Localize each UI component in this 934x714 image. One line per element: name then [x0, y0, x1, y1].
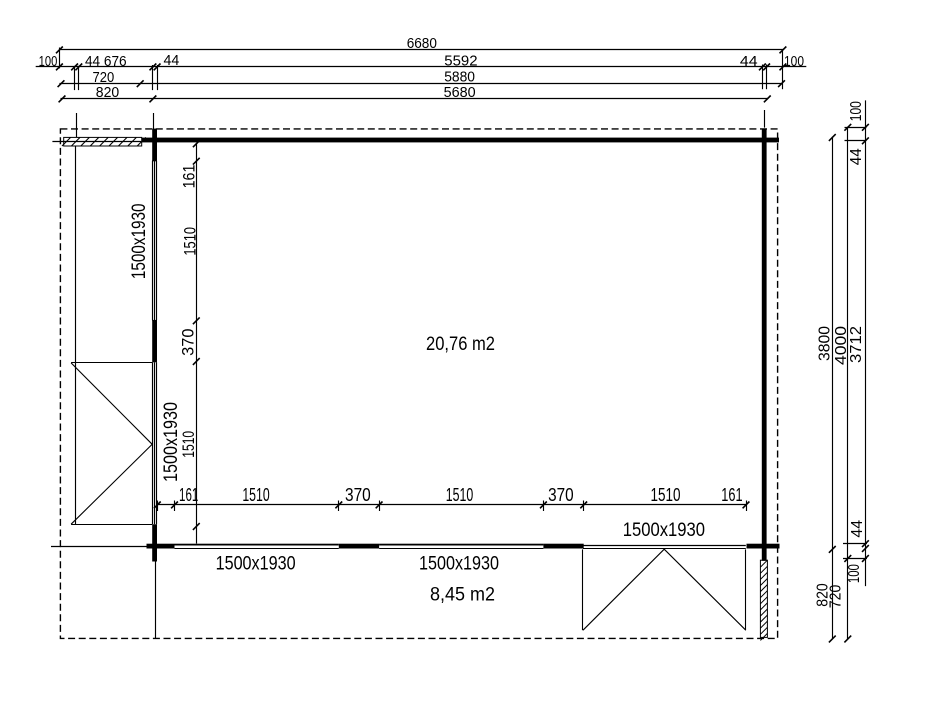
svg-text:161: 161: [179, 485, 198, 505]
svg-text:1500x1930: 1500x1930: [216, 553, 296, 574]
svg-text:8,45 m2: 8,45 m2: [430, 585, 495, 606]
svg-text:1500x1930: 1500x1930: [161, 402, 182, 482]
svg-text:161: 161: [179, 165, 198, 189]
svg-text:44 676: 44 676: [85, 54, 127, 70]
svg-text:44: 44: [849, 520, 866, 538]
svg-text:6680: 6680: [407, 36, 437, 52]
svg-text:3712: 3712: [848, 326, 865, 363]
svg-text:370: 370: [345, 485, 371, 505]
svg-text:720: 720: [93, 70, 115, 86]
svg-text:370: 370: [548, 485, 574, 505]
svg-text:100: 100: [848, 101, 865, 121]
svg-text:370: 370: [179, 329, 198, 356]
svg-text:1500x1930: 1500x1930: [419, 553, 499, 574]
svg-text:1510: 1510: [651, 485, 681, 505]
svg-text:1510: 1510: [242, 485, 269, 505]
svg-text:1500x1930: 1500x1930: [129, 204, 150, 280]
svg-text:1510: 1510: [446, 485, 474, 505]
svg-text:100: 100: [846, 564, 863, 583]
svg-text:44: 44: [848, 148, 865, 165]
svg-text:44: 44: [740, 54, 758, 70]
svg-text:820: 820: [96, 85, 119, 101]
svg-text:5680: 5680: [444, 85, 476, 101]
svg-text:44: 44: [164, 53, 180, 69]
svg-text:1500x1930: 1500x1930: [623, 520, 705, 541]
svg-text:3800: 3800: [816, 326, 833, 361]
svg-text:720: 720: [828, 584, 845, 608]
svg-text:5880: 5880: [444, 70, 475, 86]
svg-text:100: 100: [39, 54, 58, 70]
svg-text:1510: 1510: [180, 227, 199, 256]
svg-text:5592: 5592: [444, 54, 477, 70]
svg-text:161: 161: [721, 485, 742, 505]
svg-text:20,76 m2: 20,76 m2: [426, 334, 495, 355]
svg-text:100: 100: [784, 54, 804, 70]
